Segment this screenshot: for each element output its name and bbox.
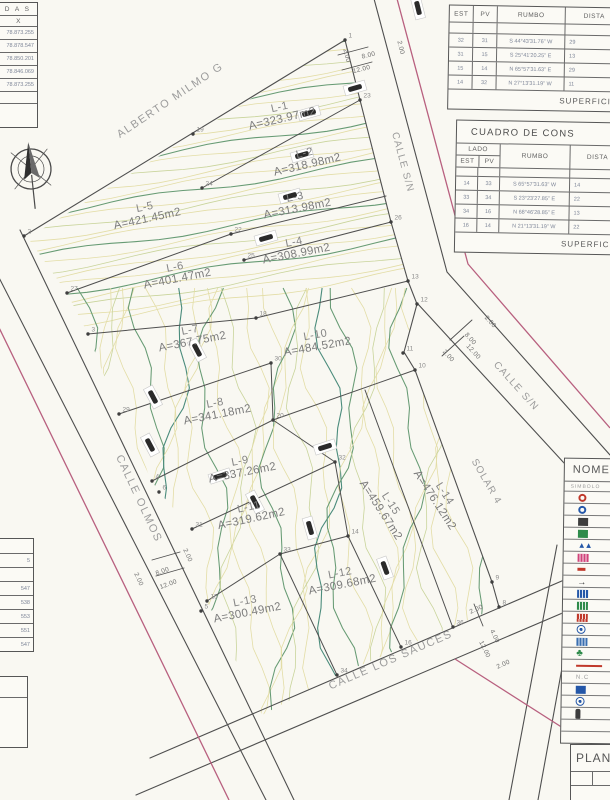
street-label-calle-los-sauces: CALLE LOS SAUCES <box>327 628 454 692</box>
vertex-marker: 3 <box>86 327 95 336</box>
contour-line <box>15 165 423 229</box>
lot-label: L-3A=313.98m2 <box>260 185 332 222</box>
vertex-marker: 14 <box>346 529 359 538</box>
table-row: 14 33 S 65°57'31.63" W 14 <box>456 176 610 193</box>
col-pv: PV <box>479 155 499 167</box>
symbol-pink-grid <box>564 551 610 564</box>
vertex-marker: 6 <box>157 485 166 494</box>
vertex-number: 30 <box>275 356 283 363</box>
dimension-label: 2.00 <box>483 315 498 330</box>
vertex-number: 11 <box>407 346 414 353</box>
symbol-red-line <box>562 659 610 672</box>
symbol-flow-arrow-icon: → <box>577 577 586 585</box>
vertex-marker: 26 <box>389 215 402 224</box>
symbol-blue-target-icon <box>577 625 586 634</box>
symbol-nc: N.C <box>562 671 610 684</box>
vertex-number: 32 <box>339 455 347 462</box>
symbol-red-circle <box>564 491 610 504</box>
legend-rows: ▲▲→♣N.C <box>561 491 610 744</box>
vertex-number: 22 <box>235 227 243 234</box>
symbol-empty-1 <box>561 719 610 732</box>
vertex-marker: 32 <box>333 455 346 464</box>
lot-label: L-14A=476.12m2 <box>411 462 468 533</box>
vertex-number: 5 <box>205 604 209 611</box>
street-label-solar-4: SOLAR 4 <box>469 457 504 506</box>
dimension-label: 2.00 <box>341 48 351 63</box>
legend-title: NOME <box>565 459 610 482</box>
coordinate-fragment: 538 <box>0 596 33 609</box>
symbol-flow-arrow: → <box>563 575 610 588</box>
vertex-number: 12 <box>421 297 429 304</box>
symbol-blue-target <box>563 623 610 636</box>
contour-line <box>15 228 423 292</box>
col-rumbo: RUMBO <box>500 144 570 168</box>
coordinate-fragment: 547 <box>0 582 33 595</box>
lot-label: L-6A=401.47m2 <box>140 255 212 292</box>
lot-label: L-8A=341.18m2 <box>180 391 252 428</box>
symbol-blue-grid <box>563 587 610 600</box>
symbol-pink-grid-icon <box>578 553 589 561</box>
dimension-label: 2.00 <box>441 349 456 364</box>
vertex-marker: 22 <box>229 227 242 236</box>
vertex-number: 25 <box>248 253 256 260</box>
contour-line <box>103 288 140 768</box>
vertex-number: 1 <box>349 33 353 40</box>
symbol-dark-square <box>564 515 610 528</box>
table-row: 34 16 N 68°46'28.85" E 13 <box>455 204 610 221</box>
lado-label: LADO <box>457 144 500 156</box>
contour-line <box>456 288 487 768</box>
plano-title: PLAN <box>571 745 610 771</box>
street-label-alberto-milmo: ALBERTO MILMO G <box>115 60 226 140</box>
vertex-number: 14 <box>352 529 360 536</box>
plano-title-block: PLAN <box>570 744 610 800</box>
lot-label: L-15A=459.67m2 <box>357 472 414 543</box>
coordinates-table-bottom: 5 547 538 553 551 547 <box>0 538 34 652</box>
dimension-label: 4.00 <box>488 629 500 645</box>
dimension-label: 12.00 <box>477 640 491 659</box>
vertex-number: 19 <box>197 127 205 134</box>
street-label-calle-sn-right: CALLE S/N <box>491 360 541 413</box>
contour-line <box>15 120 423 187</box>
symbol-blue-checker <box>562 635 610 648</box>
vertex-number: 29 <box>123 407 131 414</box>
symbol-blue-peaks: ▲▲ <box>564 539 610 552</box>
lot-label: L-13A=300.49m2 <box>210 589 282 626</box>
contour-line <box>15 189 423 255</box>
symbol-empty-2-icon <box>575 733 576 741</box>
symbol-green-square <box>564 527 610 540</box>
symbol-red-circle-icon <box>578 493 586 501</box>
vertex-marker: 23 <box>358 93 371 102</box>
coordinates-axis: X <box>0 16 37 26</box>
table-row: 16 14 N 21°13'31.19" W 22 <box>455 218 610 235</box>
legend-table: NOME SIMBOLO ▲▲→♣N.C <box>560 458 610 745</box>
contour-line <box>416 288 449 768</box>
vertex-number: 3 <box>92 327 96 334</box>
vertex-marker: 4 <box>150 474 159 483</box>
bearings-table: EST PV RUMBO DISTA 32 31 S 44°43'31.76" … <box>447 4 610 112</box>
dimension-label: 2.00 <box>496 659 512 671</box>
contour-line <box>15 137 423 201</box>
contour-line <box>15 210 423 277</box>
vertex-number: 6 <box>163 485 167 492</box>
col-rumbo: RUMBO <box>498 6 566 23</box>
dimension-label: 2.00 <box>395 40 405 55</box>
coordinate-fragment: 547 <box>0 638 33 651</box>
vertex-number: 23 <box>364 93 372 100</box>
cuadro-title: CUADRO DE CONS <box>457 121 610 146</box>
coordinate-value: 78.878.547 <box>0 40 37 52</box>
contour-line <box>15 142 423 208</box>
dimension-label: 12.00 <box>352 64 371 75</box>
symbol-blue-emblem-icon <box>576 697 585 706</box>
symbol-blue-circle <box>564 503 610 516</box>
vertex-number: 20 <box>277 413 285 420</box>
vertex-marker: 11 <box>401 346 413 355</box>
north-arrow-icon <box>8 140 55 211</box>
vertex-number: 13 <box>412 274 420 281</box>
vertex-marker: 18 <box>254 311 267 320</box>
symbol-green-grid-icon <box>577 601 588 609</box>
vertex-number: 31 <box>196 522 204 529</box>
vertex-marker: 13 <box>406 274 419 283</box>
dimension-box <box>143 385 162 409</box>
symbol-blue-grid-icon <box>577 589 588 597</box>
vertex-marker: 2 <box>22 229 31 238</box>
coordinate-value: 78.850.201 <box>0 53 37 65</box>
vertex-number: 10 <box>419 363 427 370</box>
superficie-label: SUPERFICIE <box>448 89 610 111</box>
symbol-blue-peaks-icon: ▲▲ <box>578 541 592 549</box>
vertex-number: 4 <box>156 474 160 481</box>
col-dista: DISTA <box>570 146 610 170</box>
coordinate-value: 78.846.069 <box>0 66 37 78</box>
superficie-label: SUPERFICIE <box>455 233 610 255</box>
cuadro-construccion-table: CUADRO DE CONS LADO EST PV RUMBO DISTA 1… <box>454 120 610 256</box>
coordinates-header: D A S <box>0 3 37 15</box>
contour-line <box>89 288 126 768</box>
symbol-empty-1-icon <box>575 721 576 729</box>
contour-line <box>401 288 437 768</box>
coordinate-value: 78.873.255 <box>0 79 37 91</box>
dimension-box <box>377 556 394 580</box>
symbol-red-grid <box>563 611 610 624</box>
vertex-number: 8 <box>503 600 507 607</box>
symbol-blue-emblem <box>562 695 610 708</box>
coordinate-fragment: 551 <box>0 624 33 637</box>
symbol-blue-checker-icon <box>576 637 587 645</box>
col-est: EST <box>456 155 479 167</box>
symbol-dark-bottle-icon <box>575 708 580 718</box>
coordinate-fragment: 553 <box>0 610 33 623</box>
table-row: 33 34 S 23°23'27.85" E 22 <box>456 190 610 207</box>
empty-box-left <box>0 676 28 748</box>
street-label-calle-olmos: CALLE OLMOS <box>113 453 164 544</box>
symbol-blue-box-icon <box>576 685 586 693</box>
survey-plan-page: 1234568910111213141516181920222324252627… <box>0 0 610 800</box>
col-dista: DISTA <box>566 8 610 25</box>
symbol-red-dash-icon <box>577 568 585 571</box>
vertex-marker: 31 <box>190 522 203 531</box>
vertex-number: 15 <box>211 594 219 601</box>
coordinate-value: 78.873.255 <box>0 27 37 39</box>
col-est: EST <box>450 5 474 21</box>
dimension-box <box>302 516 318 540</box>
vertex-number: 9 <box>496 575 500 582</box>
symbol-green-clover: ♣ <box>562 647 610 660</box>
vertex-marker: 1 <box>343 33 352 42</box>
dimension-label: 8.00 <box>361 50 376 60</box>
symbol-red-line-icon <box>576 664 602 666</box>
col-pv: PV <box>474 6 498 22</box>
symbol-dark-square-icon <box>578 517 588 525</box>
symbol-red-dash <box>563 563 610 576</box>
dimension-box <box>410 0 425 20</box>
legend-subtitle: SIMBOLO <box>565 482 610 492</box>
dimension-box <box>140 433 159 457</box>
symbol-empty-2 <box>561 731 610 744</box>
dimension-box <box>313 439 337 455</box>
symbol-blue-circle-icon <box>578 505 586 513</box>
symbol-green-clover-icon: ♣ <box>576 649 583 658</box>
symbol-green-square-icon <box>578 529 588 537</box>
dimension-label: 2.00 <box>132 572 144 588</box>
vertex-number: 27 <box>71 286 79 293</box>
vertex-number: 33 <box>284 547 292 554</box>
vertex-marker: 9 <box>490 575 499 584</box>
vertex-number: 24 <box>206 181 214 188</box>
vertex-marker: 36 <box>451 620 464 629</box>
dimension-box <box>254 230 278 246</box>
vertex-marker: 10 <box>413 363 426 372</box>
coordinate-fragment: 5 <box>0 554 33 567</box>
symbol-red-grid-icon <box>577 613 588 621</box>
lot-divider-lines <box>67 100 453 675</box>
dimension-label: 2.00 <box>181 548 193 564</box>
vertex-marker: 12 <box>415 297 428 306</box>
vertex-marker: 29 <box>117 407 130 416</box>
symbol-dark-bottle <box>561 707 610 720</box>
vertex-number: 36 <box>457 620 465 627</box>
dimension-label: 12.00 <box>159 578 178 591</box>
vertex-number: 18 <box>260 311 268 318</box>
dimension-label: 8.00 <box>155 566 170 577</box>
symbol-green-grid <box>563 599 610 612</box>
vertex-marker: 33 <box>278 547 291 556</box>
contour-lines <box>15 30 487 768</box>
vertex-number: 26 <box>395 215 403 222</box>
coordinates-table: D A S X 78.873.255 78.878.547 78.850.201… <box>0 2 38 128</box>
vertex-number: 2 <box>28 229 32 236</box>
symbol-blue-box <box>562 683 610 696</box>
